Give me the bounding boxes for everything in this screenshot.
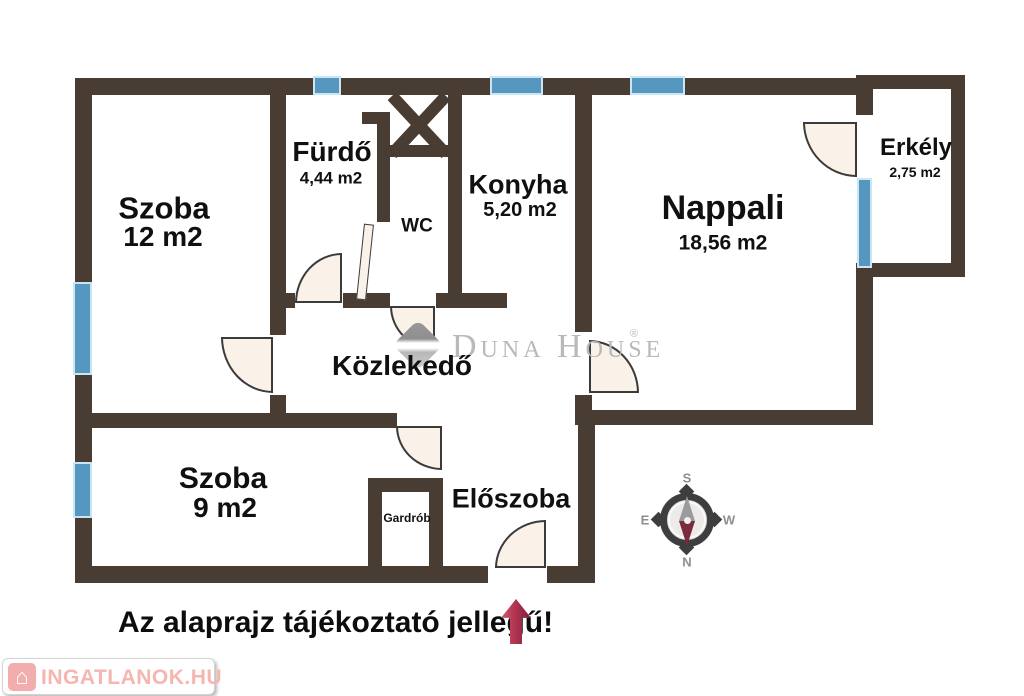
room-area-szoba9: 9 m2 <box>193 494 257 522</box>
wall-gardrob-right <box>429 478 443 583</box>
room-area-konyha: 5,20 m2 <box>483 200 556 220</box>
window <box>73 282 92 375</box>
wall <box>543 78 630 95</box>
szoba9-door <box>396 426 442 470</box>
disclaimer-text: Az alaprajz tájékoztató jellegű! <box>118 606 553 640</box>
wall-gardrob-left <box>368 478 382 583</box>
registered-mark: ® <box>630 328 638 340</box>
room-area-nappali: 18,56 m2 <box>679 233 768 254</box>
ingatlanok-logo-text: INGATLANOK.HU <box>41 666 222 690</box>
wall <box>685 78 872 95</box>
floorplan: Duna House ® Szoba 12 m2 Fürdő 4,44 m2 W… <box>0 0 1024 696</box>
wall <box>75 413 397 428</box>
wall <box>362 112 379 124</box>
room-label-eloszoba: Előszoba <box>452 486 571 513</box>
window <box>490 76 543 95</box>
room-area-szoba12: 12 m2 <box>123 223 202 251</box>
room-label-furdo: Fürdő <box>292 138 371 166</box>
wc-slim-door <box>356 224 374 301</box>
shaft-cross-icon <box>388 92 450 158</box>
wall <box>75 78 92 282</box>
wall <box>575 395 592 425</box>
compass-letter-right: W <box>723 513 735 528</box>
szoba12-door <box>221 337 273 393</box>
balcony-door <box>803 122 857 177</box>
compass-letter-bottom: N <box>682 555 691 570</box>
wall <box>856 78 873 115</box>
wall <box>578 410 595 583</box>
compass-needle-south <box>679 521 695 546</box>
wall <box>270 95 286 335</box>
wall <box>436 293 507 308</box>
room-label-wc: WC <box>401 217 433 236</box>
wall <box>856 268 873 425</box>
window <box>313 76 341 95</box>
window <box>73 462 92 518</box>
wall-balcony-right <box>951 75 965 277</box>
window-balcony <box>857 178 872 268</box>
wall <box>75 566 488 583</box>
wall <box>286 293 295 308</box>
room-label-nappali: Nappali <box>662 191 785 225</box>
room-label-szoba12: Szoba <box>118 193 209 224</box>
room-label-kozlekedo: Közlekedő <box>332 352 472 380</box>
house-icon: ⌂ <box>8 663 36 691</box>
window <box>630 76 685 95</box>
room-label-gardrob: Gardrób <box>383 512 430 524</box>
room-area-erkely: 2,75 m2 <box>889 165 940 179</box>
room-area-furdo: 4,44 m2 <box>300 170 362 187</box>
wall <box>575 95 592 332</box>
ingatlanok-logo: ⌂ INGATLANOK.HU <box>2 658 215 695</box>
wall <box>448 78 462 308</box>
room-label-szoba9: Szoba <box>179 464 267 494</box>
room-label-konyha: Konyha <box>468 172 567 199</box>
compass-letter-top: S <box>683 471 692 486</box>
room-label-erkely: Erkély <box>880 136 952 160</box>
compass-letter-left: E <box>641 513 650 528</box>
wall <box>75 78 313 95</box>
furdo-door <box>295 253 342 303</box>
wall-nappali-bottom <box>575 410 873 425</box>
entry-door <box>495 520 546 568</box>
